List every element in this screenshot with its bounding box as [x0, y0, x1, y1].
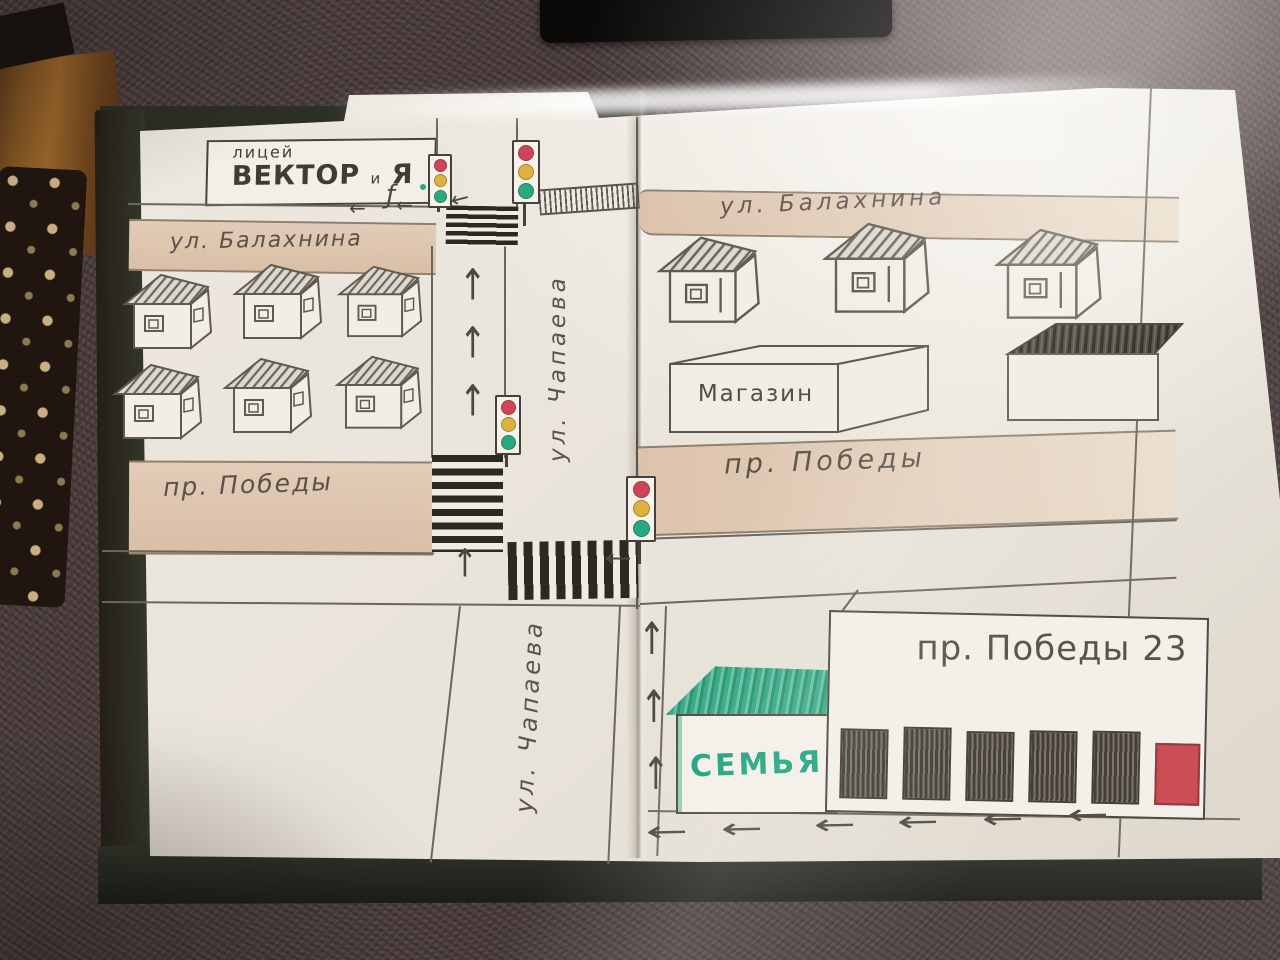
direction-arrow-left-icon: ← — [1066, 801, 1110, 830]
direction-arrow-up-icon: ↑ — [642, 751, 670, 796]
pobedy23-address-label: пр. Победы 23 — [916, 628, 1187, 669]
direction-arrow-up-icon: ↑ — [452, 545, 478, 584]
knit-blanket — [0, 166, 87, 608]
traffic-light-icon — [495, 395, 521, 455]
pobedy23-building: пр. Победы 23 — [825, 610, 1209, 820]
direction-arrow-up-icon: ↑ — [638, 616, 666, 661]
direction-arrow-left-icon: ← — [981, 805, 1025, 834]
direction-arrow-up-icon: ↑ — [640, 684, 668, 729]
houses-left-block — [118, 260, 440, 462]
lyceum-name-label: ВЕКТОР и Я — [232, 160, 429, 192]
traffic-light-icon — [512, 140, 540, 204]
dark-window — [965, 731, 1014, 802]
route-start-mark: ƒ — [386, 182, 395, 208]
black-object — [540, 0, 893, 43]
dark-window — [839, 728, 888, 799]
traffic-light-icon — [626, 476, 656, 542]
direction-arrow-up-icon: ↑ — [459, 321, 487, 364]
garage-building — [998, 314, 1188, 430]
dark-window — [902, 727, 952, 801]
shop-label: Магазин — [676, 363, 836, 425]
direction-arrow-left-icon: ← — [396, 195, 413, 215]
green-dot — [420, 184, 426, 190]
street-label-chapaeva-upper: ул. Чапаева — [545, 287, 571, 462]
direction-arrow-left-icon: ← — [813, 811, 857, 840]
semya-label: СЕМЬЯ — [690, 744, 824, 784]
pedestrian-crossing-zebra — [432, 455, 503, 552]
window-row — [839, 725, 1200, 806]
dark-window — [1028, 730, 1077, 803]
semya-store: СЕМЬЯ — [676, 714, 838, 814]
photo-scene: лицей ВЕКТОР и Я ƒ ← ← ← ← ул. Балахнина… — [0, 0, 1280, 960]
direction-arrow-left-icon: ← — [720, 815, 764, 844]
direction-arrow-up-icon: ↑ — [459, 263, 487, 306]
street-label-pobedy-left: пр. Победы — [163, 467, 334, 502]
dark-window — [1091, 731, 1141, 805]
traffic-light-icon — [428, 154, 452, 208]
red-door — [1154, 743, 1200, 806]
pedestrian-crossing-zebra — [446, 205, 519, 246]
direction-arrow-up-icon: ↑ — [459, 379, 487, 422]
direction-arrow-left-icon: ← — [349, 198, 366, 218]
direction-arrow-left-icon: ← — [645, 818, 689, 847]
direction-arrow-left-icon: ← — [896, 808, 940, 837]
street-label-balakhnina-left: ул. Балахнина — [170, 226, 363, 254]
direction-arrow-left-icon: ← — [604, 546, 632, 570]
